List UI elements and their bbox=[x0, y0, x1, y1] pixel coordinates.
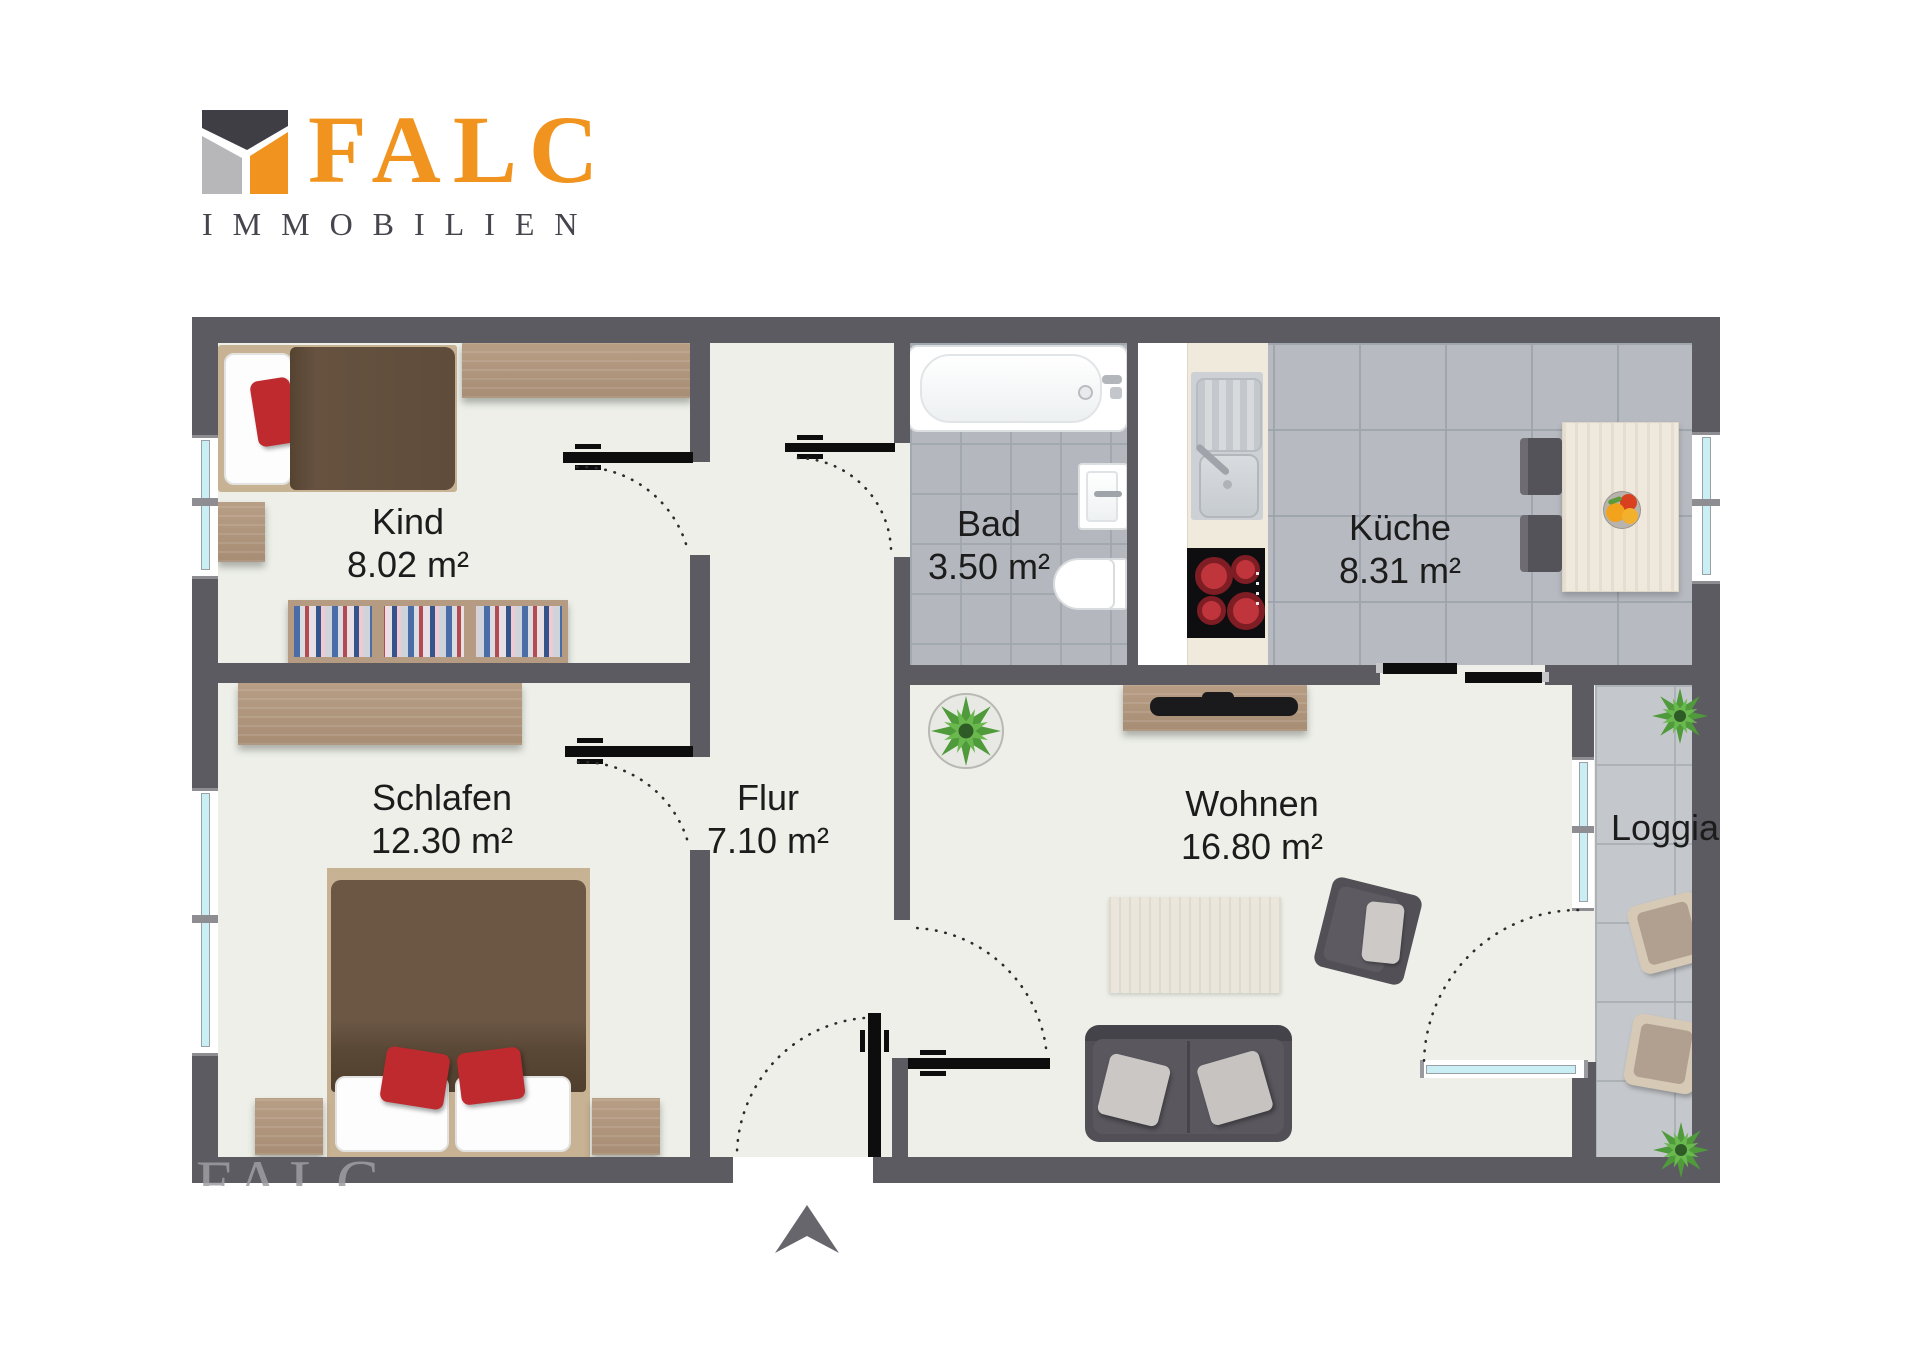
door-schlafen-hinge-icon bbox=[577, 738, 603, 743]
wohnen-sofa bbox=[1085, 1025, 1292, 1142]
wall-left-1 bbox=[192, 343, 218, 435]
bathtub bbox=[908, 345, 1128, 432]
wall-wohnen-loggia-1 bbox=[1572, 685, 1594, 757]
wall-bottom-2 bbox=[873, 1157, 1720, 1183]
sliding-door-kueche-panel-2 bbox=[1465, 672, 1542, 683]
kind-bed bbox=[218, 345, 457, 492]
window-kueche bbox=[1692, 432, 1720, 584]
room-name: Loggia bbox=[1611, 806, 1719, 849]
tv-sideboard bbox=[1123, 683, 1307, 731]
brand-logo: FALC IMMOBILIEN bbox=[202, 110, 702, 250]
window-kind bbox=[192, 435, 218, 579]
wall-top bbox=[192, 317, 1720, 343]
schlafen-nightstand-left bbox=[255, 1098, 323, 1155]
room-name: Bad bbox=[928, 502, 1050, 545]
door-wohnen-hinge-icon bbox=[920, 1050, 946, 1055]
door-kind-hinge-icon bbox=[575, 465, 601, 470]
room-name: Flur bbox=[707, 776, 829, 819]
door-bad-hinge-icon bbox=[797, 435, 823, 440]
sliding-door-kueche-panel-1 bbox=[1383, 663, 1457, 674]
door-schlafen-leaf bbox=[565, 746, 693, 757]
wall-bad-left-1 bbox=[894, 343, 910, 443]
door-bad-leaf bbox=[785, 443, 895, 452]
falc-house-logo-icon bbox=[202, 110, 288, 194]
wohnen-rug bbox=[1109, 897, 1281, 993]
wall-left-3 bbox=[192, 1050, 218, 1157]
wall-flur-wohnen-1 bbox=[894, 685, 910, 920]
room-label-wohnen: Wohnen 16.80 m² bbox=[1181, 782, 1323, 868]
door-wohnen-hinge-icon bbox=[920, 1071, 946, 1076]
wall-schlafen-flur-2 bbox=[690, 850, 710, 1157]
room-label-bad: Bad 3.50 m² bbox=[928, 502, 1050, 588]
schlafen-nightstand-right bbox=[592, 1098, 660, 1155]
wall-right-1 bbox=[1692, 343, 1720, 432]
room-label-kind: Kind 8.02 m² bbox=[347, 500, 469, 586]
wall-mid-horizontal-2 bbox=[1545, 665, 1720, 685]
door-wohnen-leaf bbox=[908, 1058, 1050, 1069]
room-area: 7.10 m² bbox=[707, 819, 829, 862]
dining-chair-1 bbox=[1520, 438, 1562, 495]
door-entrance-hinge-icon bbox=[884, 1030, 889, 1052]
wall-flur-wohnen-2 bbox=[892, 1058, 908, 1157]
door-kind-hinge-icon bbox=[575, 444, 601, 449]
dining-chair-2 bbox=[1520, 515, 1562, 572]
washbasin bbox=[1078, 463, 1128, 530]
brand-logo-subtitle: IMMOBILIEN bbox=[202, 206, 598, 243]
sliding-door-frame bbox=[1542, 672, 1549, 682]
floorplan-page: FALC IMMOBILIEN bbox=[0, 0, 1920, 1357]
wall-kind-schlafen bbox=[192, 663, 710, 683]
wall-kind-flur-1 bbox=[690, 343, 710, 462]
fruit-bowl-icon bbox=[1603, 491, 1641, 529]
kitchen-sink bbox=[1191, 372, 1263, 520]
washbasin-faucet-icon bbox=[1094, 491, 1122, 497]
wall-kind-flur-2 bbox=[690, 555, 710, 663]
wall-mid-horizontal-1 bbox=[894, 665, 1380, 685]
watermark-clip: FALC bbox=[196, 1148, 496, 1186]
wall-bad-left-2 bbox=[894, 557, 910, 665]
door-bad-hinge-icon bbox=[797, 454, 823, 459]
door-entrance-hinge-icon bbox=[860, 1030, 865, 1052]
door-kind-leaf bbox=[563, 452, 693, 463]
room-label-flur: Flur 7.10 m² bbox=[707, 776, 829, 862]
kind-side-table bbox=[218, 502, 265, 562]
schlafen-double-bed bbox=[327, 868, 590, 1157]
kind-bookshelf bbox=[288, 600, 568, 663]
room-name: Wohnen bbox=[1181, 782, 1323, 825]
door-schlafen-hinge-icon bbox=[577, 759, 603, 764]
window-loggia bbox=[1572, 757, 1594, 911]
dining-table bbox=[1562, 422, 1679, 592]
room-name: Kind bbox=[347, 500, 469, 543]
north-arrow-icon bbox=[775, 1205, 839, 1253]
wall-schlafen-flur-1 bbox=[690, 683, 710, 757]
room-area: 3.50 m² bbox=[928, 545, 1050, 588]
utility-shaft bbox=[1138, 343, 1187, 665]
balcony-door-leaf bbox=[1420, 1060, 1588, 1078]
room-area: 8.31 m² bbox=[1339, 549, 1461, 592]
door-entrance-leaf bbox=[868, 1013, 881, 1157]
window-schlafen bbox=[192, 788, 218, 1056]
sliding-door-frame bbox=[1376, 663, 1383, 673]
room-area: 12.30 m² bbox=[371, 819, 513, 862]
kitchen-stove bbox=[1187, 548, 1265, 638]
room-name: Schlafen bbox=[371, 776, 513, 819]
brand-logo-text: FALC bbox=[308, 94, 610, 205]
watermark-text: FALC bbox=[196, 1148, 387, 1186]
kind-desk bbox=[462, 343, 692, 398]
room-area: 8.02 m² bbox=[347, 543, 469, 586]
schlafen-wardrobe bbox=[238, 683, 522, 745]
room-label-loggia: Loggia bbox=[1611, 806, 1719, 849]
room-label-kueche: Küche 8.31 m² bbox=[1339, 506, 1461, 592]
room-label-schlafen: Schlafen 12.30 m² bbox=[371, 776, 513, 862]
room-name: Küche bbox=[1339, 506, 1461, 549]
room-area: 16.80 m² bbox=[1181, 825, 1323, 868]
wall-bad-right bbox=[1127, 343, 1138, 665]
toilet bbox=[1053, 556, 1127, 608]
bathtub-faucet-icon bbox=[1102, 375, 1122, 384]
